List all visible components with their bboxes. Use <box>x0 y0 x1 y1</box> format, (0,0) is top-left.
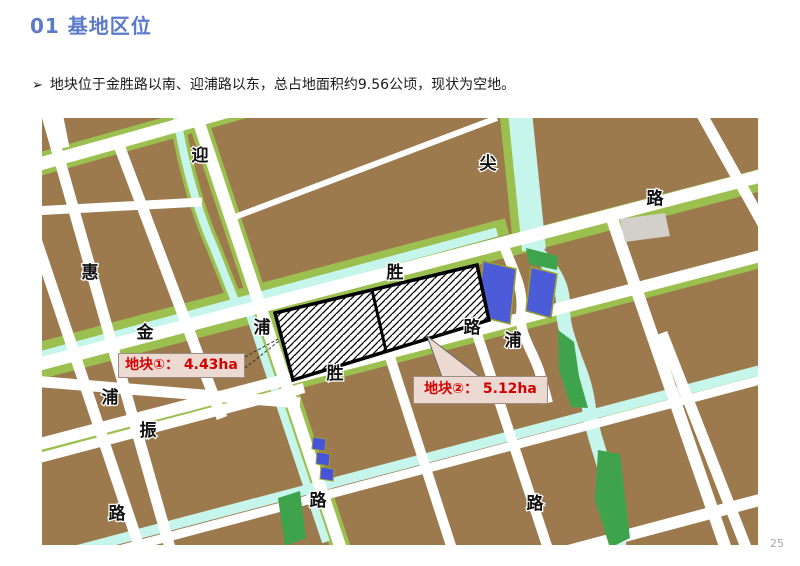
bullet-arrow-icon: ➢ <box>32 78 43 93</box>
road-label: 振 <box>140 420 157 441</box>
blue-parcel-2 <box>526 267 557 318</box>
parcel-1-callout: 地块①： 4.43ha <box>118 353 245 378</box>
road-label: 路 <box>464 317 482 338</box>
slide-title: 01 基地区位 <box>30 10 152 39</box>
road-label: 路 <box>527 493 545 514</box>
road-label: 胜 <box>327 364 344 384</box>
blue-lot-small-1 <box>312 437 326 451</box>
page-number: 25 <box>770 537 784 550</box>
site-location-map: 迎 尖 路 惠 胜 金 浦 路 浦 胜 浦 振 路 路 路 地块①： 4.43h… <box>42 118 758 545</box>
bullet-text: 地块位于金胜路以南、迎浦路以东，总占地面积约9.56公顷，现状为空地。 <box>50 77 515 93</box>
road-label: 浦 <box>505 330 522 351</box>
road-label: 金 <box>136 322 155 343</box>
bullet-point: ➢地块位于金胜路以南、迎浦路以东，总占地面积约9.56公顷，现状为空地。 <box>32 74 778 94</box>
road-label: 浦 <box>102 387 119 408</box>
blue-lot-small-3 <box>320 467 334 481</box>
road-label: 路 <box>310 490 328 511</box>
road-label: 迎 <box>192 145 209 166</box>
road-label: 浦 <box>254 317 271 338</box>
blue-lot-small-2 <box>316 452 330 466</box>
map-canvas: 迎 尖 路 惠 胜 金 浦 路 浦 胜 浦 振 路 路 路 <box>42 118 758 545</box>
road-label: 路 <box>647 188 665 209</box>
road-label: 胜 <box>387 263 404 283</box>
road-label: 尖 <box>480 153 498 174</box>
road-label: 路 <box>109 503 127 524</box>
parcel-2-callout: 地块②： 5.12ha <box>413 376 548 404</box>
road-label: 惠 <box>82 262 99 283</box>
